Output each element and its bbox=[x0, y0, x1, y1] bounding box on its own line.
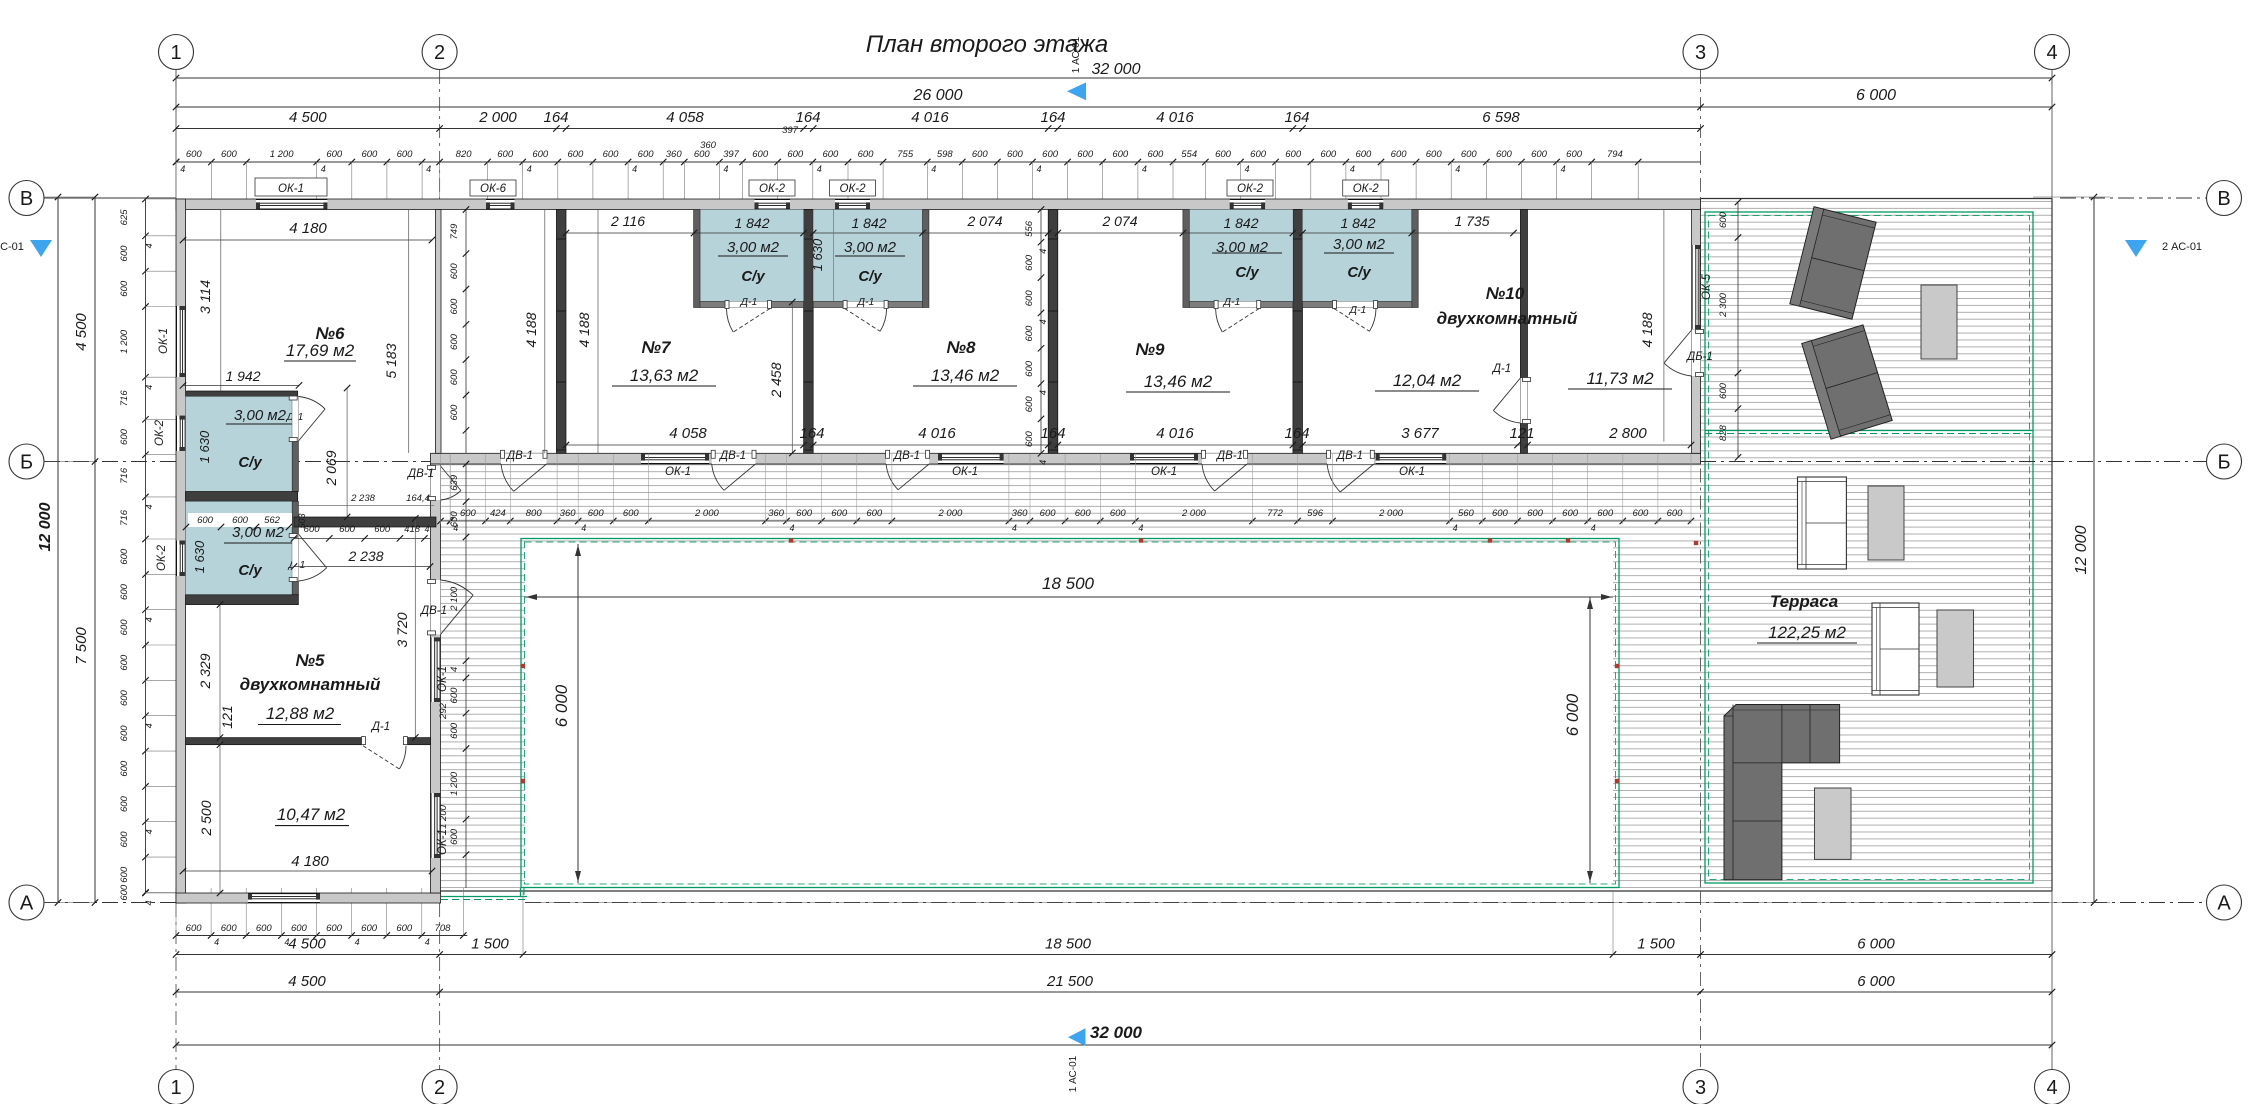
svg-text:12,88 м2: 12,88 м2 bbox=[266, 704, 335, 723]
svg-text:716: 716 bbox=[119, 509, 130, 526]
svg-text:1 630: 1 630 bbox=[810, 238, 825, 271]
svg-text:600: 600 bbox=[119, 654, 130, 671]
svg-text:600: 600 bbox=[1527, 508, 1544, 519]
svg-text:600: 600 bbox=[1391, 149, 1408, 160]
svg-text:600: 600 bbox=[1531, 149, 1548, 160]
svg-text:2 500: 2 500 bbox=[198, 800, 214, 836]
svg-text:4: 4 bbox=[284, 937, 289, 947]
svg-text:360: 360 bbox=[560, 508, 577, 519]
svg-text:600: 600 bbox=[1042, 149, 1059, 160]
svg-text:600: 600 bbox=[119, 760, 130, 777]
svg-text:Д-1: Д-1 bbox=[1491, 363, 1511, 375]
svg-text:4: 4 bbox=[2046, 1077, 2057, 1099]
svg-text:Терраса: Терраса bbox=[1770, 592, 1838, 611]
svg-text:ОК-2: ОК-2 bbox=[1353, 183, 1380, 195]
svg-text:772: 772 bbox=[1267, 508, 1284, 519]
svg-text:121: 121 bbox=[1509, 425, 1534, 442]
svg-text:2 000: 2 000 bbox=[938, 508, 963, 519]
svg-text:600: 600 bbox=[787, 149, 804, 160]
svg-text:600: 600 bbox=[449, 828, 460, 845]
svg-text:4: 4 bbox=[723, 164, 728, 174]
svg-text:№5: №5 bbox=[296, 651, 325, 670]
svg-text:4: 4 bbox=[453, 523, 458, 533]
svg-text:600: 600 bbox=[1492, 508, 1509, 519]
svg-text:2 000: 2 000 bbox=[478, 109, 517, 126]
svg-text:двухкомнатный: двухкомнатный bbox=[1437, 309, 1578, 328]
svg-text:6 000: 6 000 bbox=[552, 684, 571, 727]
svg-text:3 677: 3 677 bbox=[1401, 425, 1439, 442]
svg-text:4: 4 bbox=[1038, 390, 1048, 395]
svg-text:600: 600 bbox=[1075, 508, 1092, 519]
svg-text:2 238: 2 238 bbox=[347, 548, 383, 564]
svg-text:600: 600 bbox=[588, 508, 605, 519]
svg-text:С/у: С/у bbox=[741, 268, 765, 285]
svg-text:№9: №9 bbox=[1136, 340, 1165, 359]
svg-text:600: 600 bbox=[1632, 508, 1649, 519]
svg-text:2 800: 2 800 bbox=[1608, 425, 1647, 442]
svg-text:600: 600 bbox=[567, 149, 584, 160]
svg-text:600: 600 bbox=[796, 508, 813, 519]
svg-text:600: 600 bbox=[119, 866, 130, 883]
svg-text:3: 3 bbox=[1695, 42, 1706, 64]
svg-text:32 000: 32 000 bbox=[1090, 1023, 1143, 1042]
svg-text:4 058: 4 058 bbox=[669, 425, 707, 442]
svg-text:600: 600 bbox=[1667, 508, 1684, 519]
svg-text:600: 600 bbox=[232, 515, 249, 526]
svg-text:164: 164 bbox=[795, 109, 820, 126]
svg-text:800: 800 bbox=[526, 508, 543, 519]
svg-text:600: 600 bbox=[449, 687, 460, 704]
svg-text:600: 600 bbox=[1718, 382, 1729, 399]
svg-text:5 183: 5 183 bbox=[383, 343, 399, 378]
svg-text:6 000: 6 000 bbox=[1563, 693, 1582, 736]
svg-text:4: 4 bbox=[1142, 164, 1147, 174]
svg-text:600: 600 bbox=[831, 508, 848, 519]
svg-text:4: 4 bbox=[1012, 523, 1017, 533]
svg-text:С/у: С/у bbox=[238, 454, 262, 471]
svg-text:6 000: 6 000 bbox=[1857, 936, 1895, 953]
svg-text:562: 562 bbox=[264, 515, 281, 526]
svg-text:4 500: 4 500 bbox=[289, 109, 327, 126]
svg-text:600: 600 bbox=[449, 298, 460, 315]
svg-text:2 АС-01: 2 АС-01 bbox=[2162, 241, 2202, 253]
svg-text:6 000: 6 000 bbox=[1856, 87, 1896, 104]
svg-text:1 735: 1 735 bbox=[1454, 213, 1489, 229]
svg-text:600: 600 bbox=[186, 149, 203, 160]
svg-text:598: 598 bbox=[937, 149, 954, 160]
svg-text:4: 4 bbox=[1561, 164, 1566, 174]
svg-text:1 200: 1 200 bbox=[449, 771, 460, 795]
svg-text:32 000: 32 000 bbox=[1092, 61, 1141, 78]
svg-text:4: 4 bbox=[632, 164, 637, 174]
svg-text:4: 4 bbox=[1038, 460, 1048, 465]
svg-text:596: 596 bbox=[1307, 508, 1324, 519]
svg-text:4: 4 bbox=[817, 164, 822, 174]
svg-text:600: 600 bbox=[1007, 149, 1024, 160]
svg-text:двухкомнатный: двухкомнатный bbox=[240, 675, 381, 694]
svg-text:4: 4 bbox=[144, 617, 154, 622]
svg-text:600: 600 bbox=[1024, 430, 1035, 447]
svg-text:600: 600 bbox=[1024, 360, 1035, 377]
svg-text:164: 164 bbox=[543, 109, 568, 126]
svg-text:600: 600 bbox=[361, 923, 378, 934]
svg-text:13,63 м2: 13,63 м2 bbox=[630, 366, 699, 385]
svg-text:4: 4 bbox=[144, 504, 154, 509]
svg-text:1 842: 1 842 bbox=[851, 215, 886, 231]
svg-text:11,73 м2: 11,73 м2 bbox=[1586, 369, 1654, 388]
svg-text:1 842: 1 842 bbox=[1223, 215, 1258, 231]
svg-text:360: 360 bbox=[666, 149, 683, 160]
svg-text:397: 397 bbox=[723, 149, 740, 160]
svg-text:4 016: 4 016 bbox=[911, 109, 949, 126]
svg-text:4 016: 4 016 bbox=[1156, 109, 1194, 126]
svg-text:1 200: 1 200 bbox=[119, 329, 130, 353]
svg-text:4: 4 bbox=[144, 385, 154, 390]
svg-text:3,00 м2: 3,00 м2 bbox=[234, 407, 287, 424]
svg-text:600: 600 bbox=[1285, 149, 1302, 160]
svg-text:ОК-5: ОК-5 bbox=[1701, 273, 1713, 300]
svg-text:1: 1 bbox=[170, 42, 181, 64]
svg-text:360: 360 bbox=[768, 508, 785, 519]
svg-text:600: 600 bbox=[1562, 508, 1579, 519]
svg-text:12 000: 12 000 bbox=[37, 502, 54, 551]
svg-text:10,47 м2: 10,47 м2 bbox=[277, 805, 346, 824]
svg-text:2 238: 2 238 bbox=[350, 493, 375, 504]
svg-text:600: 600 bbox=[972, 149, 989, 160]
svg-text:560: 560 bbox=[1458, 508, 1475, 519]
svg-text:2: 2 bbox=[434, 1077, 445, 1099]
svg-text:Д-1: Д-1 bbox=[370, 721, 390, 733]
svg-text:4 180: 4 180 bbox=[289, 220, 327, 237]
svg-text:600: 600 bbox=[119, 245, 130, 262]
svg-text:716: 716 bbox=[119, 467, 130, 484]
svg-text:Д-1: Д-1 bbox=[1349, 304, 1367, 316]
svg-text:2 100: 2 100 bbox=[449, 586, 460, 611]
svg-text:600: 600 bbox=[119, 583, 130, 600]
svg-text:1 АС-01: 1 АС-01 bbox=[1068, 1055, 1079, 1092]
svg-text:556: 556 bbox=[1024, 220, 1035, 237]
svg-text:В: В bbox=[2217, 188, 2230, 210]
svg-text:600: 600 bbox=[291, 923, 308, 934]
svg-text:600: 600 bbox=[532, 149, 549, 160]
svg-text:600: 600 bbox=[449, 369, 460, 386]
svg-text:4: 4 bbox=[144, 900, 154, 905]
svg-text:ОК-2: ОК-2 bbox=[154, 419, 166, 446]
svg-text:26 000: 26 000 bbox=[913, 87, 963, 104]
svg-text:ОК-2: ОК-2 bbox=[840, 183, 867, 195]
svg-text:ДВ-1: ДВ-1 bbox=[892, 450, 920, 462]
svg-text:164: 164 bbox=[799, 425, 824, 442]
svg-text:№8: №8 bbox=[947, 338, 976, 357]
svg-text:164: 164 bbox=[1040, 109, 1065, 126]
svg-text:600: 600 bbox=[449, 333, 460, 350]
svg-text:4: 4 bbox=[449, 667, 460, 672]
svg-text:4: 4 bbox=[2046, 42, 2057, 64]
svg-text:1 200: 1 200 bbox=[438, 804, 449, 828]
svg-text:ОК-1: ОК-1 bbox=[278, 183, 304, 195]
svg-text:ДВ-1: ДВ-1 bbox=[1215, 450, 1243, 462]
svg-text:4: 4 bbox=[1038, 249, 1048, 254]
svg-text:121: 121 bbox=[219, 705, 235, 728]
svg-text:639: 639 bbox=[449, 474, 460, 491]
svg-text:749: 749 bbox=[449, 223, 460, 240]
svg-text:ОК-1: ОК-1 bbox=[158, 328, 170, 354]
svg-text:4 188: 4 188 bbox=[523, 312, 539, 347]
svg-text:600: 600 bbox=[1110, 508, 1127, 519]
svg-text:600: 600 bbox=[1461, 149, 1478, 160]
svg-text:4: 4 bbox=[1038, 319, 1048, 324]
svg-text:12 000: 12 000 bbox=[2073, 525, 2090, 574]
svg-text:4 500: 4 500 bbox=[73, 313, 90, 351]
svg-text:Д-1: Д-1 bbox=[857, 296, 875, 308]
svg-text:164,4: 164,4 bbox=[406, 493, 430, 504]
svg-text:17,69 м2: 17,69 м2 bbox=[286, 341, 355, 360]
svg-text:600: 600 bbox=[119, 280, 130, 297]
svg-text:600: 600 bbox=[1426, 149, 1443, 160]
svg-text:4 500: 4 500 bbox=[288, 936, 326, 953]
svg-text:4: 4 bbox=[1350, 164, 1355, 174]
svg-text:794: 794 bbox=[1607, 149, 1623, 160]
svg-text:2 329: 2 329 bbox=[197, 653, 213, 689]
svg-text:424: 424 bbox=[490, 508, 506, 519]
svg-text:С-01: С-01 bbox=[0, 241, 24, 253]
svg-text:1 630: 1 630 bbox=[197, 430, 212, 463]
svg-text:600: 600 bbox=[119, 795, 130, 812]
svg-text:18 500: 18 500 bbox=[1045, 936, 1092, 953]
svg-text:ДВ-1: ДВ-1 bbox=[1335, 450, 1363, 462]
svg-text:4: 4 bbox=[144, 723, 154, 728]
svg-text:Б: Б bbox=[2217, 452, 2230, 474]
svg-text:4: 4 bbox=[790, 523, 795, 533]
svg-text:2: 2 bbox=[434, 42, 445, 64]
svg-text:600: 600 bbox=[361, 149, 378, 160]
svg-text:3: 3 bbox=[1695, 1077, 1706, 1099]
svg-text:7 500: 7 500 bbox=[73, 627, 90, 665]
svg-text:600: 600 bbox=[326, 923, 343, 934]
svg-text:4: 4 bbox=[1138, 523, 1143, 533]
svg-text:600: 600 bbox=[119, 725, 130, 742]
svg-text:3 720: 3 720 bbox=[394, 612, 410, 647]
svg-text:4 500: 4 500 bbox=[288, 973, 326, 990]
svg-text:ДБ-1: ДБ-1 bbox=[1685, 351, 1713, 363]
svg-text:600: 600 bbox=[1718, 211, 1729, 228]
svg-text:2 074: 2 074 bbox=[966, 213, 1002, 229]
svg-text:600: 600 bbox=[221, 923, 238, 934]
svg-text:13,46 м2: 13,46 м2 bbox=[1144, 372, 1213, 391]
svg-text:2 458: 2 458 bbox=[768, 362, 784, 398]
svg-text:600: 600 bbox=[1024, 254, 1035, 271]
svg-text:2 069: 2 069 bbox=[323, 450, 339, 486]
svg-text:4: 4 bbox=[1591, 523, 1596, 533]
svg-text:ОК-1: ОК-1 bbox=[665, 466, 691, 478]
svg-text:600: 600 bbox=[449, 263, 460, 280]
svg-text:4: 4 bbox=[214, 937, 219, 947]
svg-text:600: 600 bbox=[1040, 508, 1057, 519]
svg-text:600: 600 bbox=[497, 149, 514, 160]
svg-text:600: 600 bbox=[858, 149, 875, 160]
svg-text:2 000: 2 000 bbox=[694, 508, 719, 519]
svg-text:6 000: 6 000 bbox=[1857, 973, 1895, 990]
svg-text:600: 600 bbox=[1320, 149, 1337, 160]
svg-text:С/у: С/у bbox=[238, 562, 262, 579]
svg-text:164: 164 bbox=[1284, 425, 1309, 442]
svg-text:ОК-2: ОК-2 bbox=[759, 183, 786, 195]
svg-text:2 000: 2 000 bbox=[1378, 508, 1403, 519]
svg-text:292: 292 bbox=[438, 702, 449, 720]
svg-text:3,00 м2: 3,00 м2 bbox=[1333, 236, 1386, 253]
svg-text:600: 600 bbox=[119, 831, 130, 848]
svg-text:600: 600 bbox=[197, 515, 214, 526]
svg-text:21 500: 21 500 bbox=[1046, 973, 1094, 990]
svg-text:600: 600 bbox=[449, 722, 460, 739]
svg-text:4: 4 bbox=[321, 164, 326, 174]
svg-text:600: 600 bbox=[1112, 149, 1129, 160]
svg-text:4: 4 bbox=[144, 243, 154, 248]
svg-text:122,25 м2: 122,25 м2 bbox=[1768, 623, 1846, 642]
svg-text:708: 708 bbox=[435, 923, 452, 934]
svg-text:С/у: С/у bbox=[858, 268, 882, 285]
svg-text:4 016: 4 016 bbox=[1156, 425, 1194, 442]
svg-text:4 180: 4 180 bbox=[291, 853, 329, 870]
svg-text:600: 600 bbox=[119, 548, 130, 565]
svg-text:18 500: 18 500 bbox=[1042, 574, 1095, 593]
svg-text:2 074: 2 074 bbox=[1101, 213, 1137, 229]
svg-text:820: 820 bbox=[456, 149, 473, 160]
svg-text:600: 600 bbox=[186, 923, 203, 934]
svg-text:164: 164 bbox=[1284, 109, 1309, 126]
svg-text:600: 600 bbox=[397, 149, 414, 160]
svg-text:ОК-6: ОК-6 bbox=[480, 183, 507, 195]
svg-text:600: 600 bbox=[1355, 149, 1372, 160]
svg-text:ОК-1: ОК-1 bbox=[437, 666, 449, 692]
svg-text:164: 164 bbox=[1040, 425, 1065, 442]
svg-text:В: В bbox=[20, 188, 33, 210]
svg-text:600: 600 bbox=[119, 884, 130, 901]
svg-text:4: 4 bbox=[1245, 164, 1250, 174]
svg-text:2 000: 2 000 bbox=[1181, 508, 1206, 519]
svg-text:ОК-1: ОК-1 bbox=[437, 829, 449, 855]
svg-text:3 114: 3 114 bbox=[197, 280, 213, 314]
svg-text:1 АС-01: 1 АС-01 bbox=[1071, 36, 1082, 73]
svg-text:600: 600 bbox=[304, 524, 321, 535]
svg-text:600: 600 bbox=[1496, 149, 1513, 160]
svg-text:6 598: 6 598 bbox=[1482, 109, 1520, 126]
svg-text:600: 600 bbox=[119, 619, 130, 636]
svg-text:А: А bbox=[2217, 893, 2231, 915]
svg-text:600: 600 bbox=[1024, 290, 1035, 307]
svg-text:1 842: 1 842 bbox=[734, 215, 769, 231]
svg-text:ОК-2: ОК-2 bbox=[156, 544, 168, 571]
svg-text:397: 397 bbox=[782, 125, 799, 136]
svg-text:3,00 м2: 3,00 м2 bbox=[844, 239, 897, 256]
svg-text:4: 4 bbox=[144, 829, 154, 834]
svg-text:600: 600 bbox=[339, 524, 356, 535]
svg-text:600: 600 bbox=[396, 923, 413, 934]
svg-text:828: 828 bbox=[1718, 424, 1729, 441]
svg-text:600: 600 bbox=[752, 149, 769, 160]
svg-text:4: 4 bbox=[527, 164, 532, 174]
svg-text:600: 600 bbox=[623, 508, 640, 519]
svg-text:600: 600 bbox=[866, 508, 883, 519]
svg-text:1 200: 1 200 bbox=[270, 149, 294, 160]
svg-text:ОК-1: ОК-1 bbox=[1399, 466, 1425, 478]
svg-text:600: 600 bbox=[1147, 149, 1164, 160]
svg-text:600: 600 bbox=[460, 508, 477, 519]
svg-text:625: 625 bbox=[119, 209, 130, 226]
svg-text:4 058: 4 058 bbox=[666, 109, 704, 126]
svg-text:4: 4 bbox=[355, 937, 360, 947]
svg-text:418: 418 bbox=[404, 524, 421, 535]
svg-text:600: 600 bbox=[638, 149, 655, 160]
svg-text:4: 4 bbox=[1453, 523, 1458, 533]
svg-text:554: 554 bbox=[1181, 149, 1197, 160]
svg-text:600: 600 bbox=[1566, 149, 1583, 160]
svg-text:4: 4 bbox=[424, 524, 429, 534]
svg-text:4 188: 4 188 bbox=[576, 312, 592, 347]
svg-text:4 188: 4 188 bbox=[1639, 312, 1655, 347]
svg-text:ДВ-1: ДВ-1 bbox=[505, 450, 533, 462]
svg-text:600: 600 bbox=[1597, 508, 1614, 519]
svg-text:ДВ-1: ДВ-1 bbox=[718, 450, 746, 462]
svg-text:600: 600 bbox=[256, 923, 273, 934]
svg-text:ОК-1: ОК-1 bbox=[1151, 466, 1177, 478]
svg-text:600: 600 bbox=[449, 404, 460, 421]
svg-text:600: 600 bbox=[119, 689, 130, 706]
svg-text:755: 755 bbox=[897, 149, 914, 160]
svg-text:1 842: 1 842 bbox=[1340, 215, 1375, 231]
svg-text:4: 4 bbox=[425, 937, 430, 947]
svg-text:600: 600 bbox=[1077, 149, 1094, 160]
svg-text:600: 600 bbox=[603, 149, 620, 160]
svg-text:1 630: 1 630 bbox=[192, 540, 207, 573]
svg-text:1 500: 1 500 bbox=[471, 936, 509, 953]
svg-text:4: 4 bbox=[931, 164, 936, 174]
svg-text:4: 4 bbox=[1455, 164, 1460, 174]
svg-text:360: 360 bbox=[700, 140, 717, 151]
svg-text:4 016: 4 016 bbox=[918, 425, 956, 442]
svg-text:С/у: С/у bbox=[1235, 264, 1259, 281]
svg-text:С/у: С/у bbox=[1347, 264, 1371, 281]
svg-text:600: 600 bbox=[221, 149, 238, 160]
svg-text:ДВ-1: ДВ-1 bbox=[419, 605, 447, 617]
svg-text:600: 600 bbox=[1215, 149, 1232, 160]
svg-text:Д-1: Д-1 bbox=[740, 296, 758, 308]
svg-text:1: 1 bbox=[170, 1077, 181, 1099]
svg-text:Д-1: Д-1 bbox=[1223, 296, 1241, 308]
svg-text:2 116: 2 116 bbox=[610, 213, 645, 229]
svg-text:360: 360 bbox=[1012, 508, 1029, 519]
svg-text:600: 600 bbox=[326, 149, 343, 160]
svg-text:№10: №10 bbox=[1486, 284, 1525, 303]
svg-text:13,46 м2: 13,46 м2 bbox=[931, 366, 1000, 385]
svg-text:4: 4 bbox=[180, 164, 185, 174]
svg-text:4: 4 bbox=[581, 523, 586, 533]
svg-text:600: 600 bbox=[1024, 325, 1035, 342]
svg-text:2 300: 2 300 bbox=[1718, 292, 1729, 317]
svg-text:600: 600 bbox=[119, 428, 130, 445]
svg-text:4: 4 bbox=[426, 164, 431, 174]
svg-text:ОК-2: ОК-2 bbox=[1237, 183, 1264, 195]
svg-text:600: 600 bbox=[1250, 149, 1267, 160]
svg-text:4: 4 bbox=[1037, 164, 1042, 174]
svg-text:А: А bbox=[20, 893, 34, 915]
svg-text:600: 600 bbox=[374, 524, 391, 535]
svg-text:716: 716 bbox=[119, 390, 130, 407]
svg-text:1 942: 1 942 bbox=[225, 368, 260, 384]
svg-text:1 500: 1 500 bbox=[1637, 936, 1675, 953]
svg-text:600: 600 bbox=[1024, 396, 1035, 413]
svg-text:ОК-1: ОК-1 bbox=[952, 466, 978, 478]
